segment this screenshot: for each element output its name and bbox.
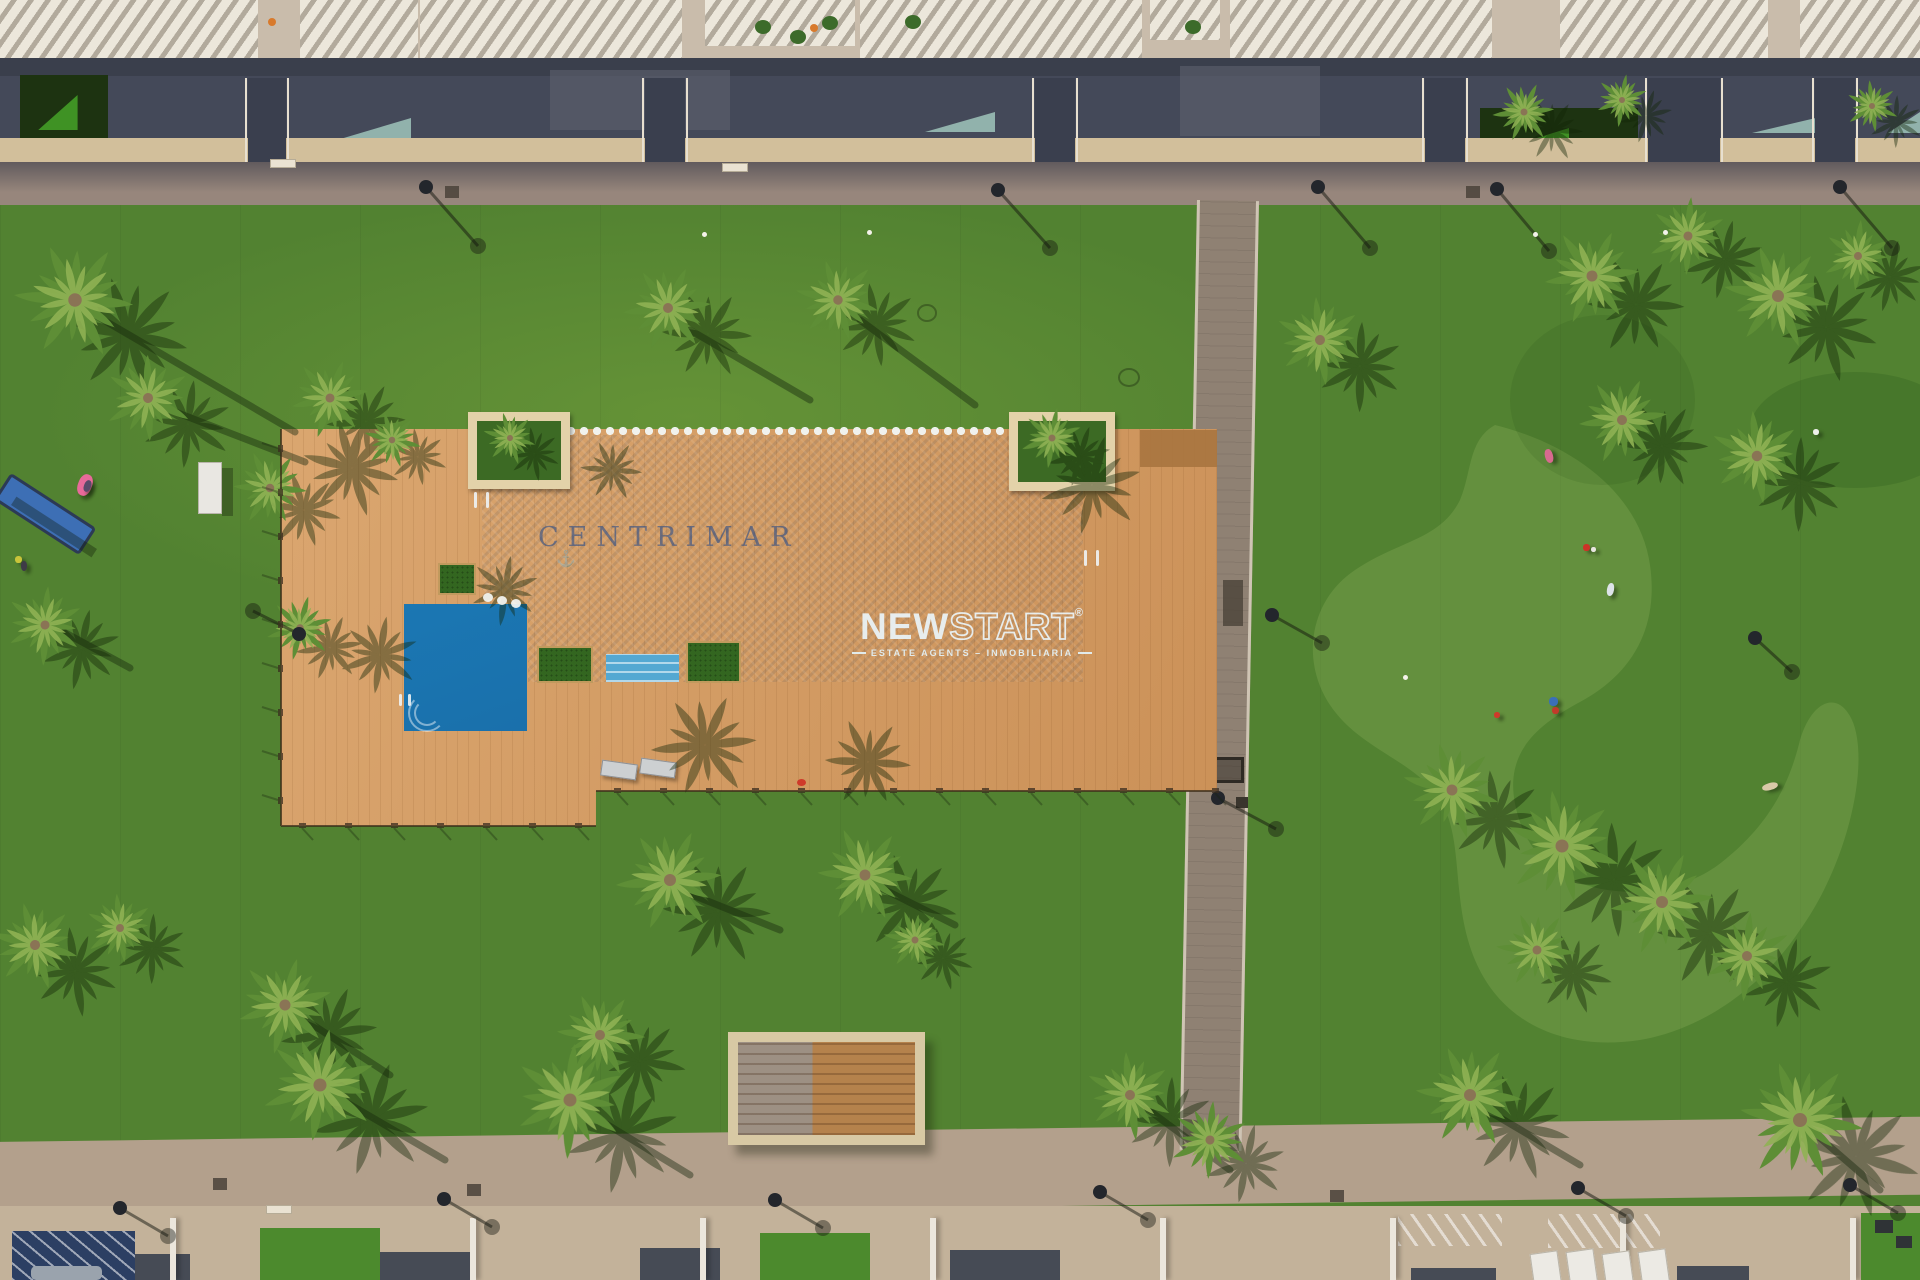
gate-recess	[1425, 78, 1465, 162]
pavement-plaque	[266, 1205, 292, 1214]
unit-dividing-wall	[930, 1218, 936, 1280]
unit-dividing-wall	[700, 1218, 706, 1280]
logo-new-text: NEW	[860, 606, 949, 647]
top-promenade-shadow	[0, 162, 1920, 205]
registered-mark: ®	[1075, 607, 1084, 619]
drain-grate	[445, 186, 459, 198]
garden-chair	[1875, 1220, 1893, 1233]
agency-logo: NEWSTART® ESTATE AGENTS – INMOBILIARIA	[852, 608, 1092, 658]
private-garden-patch	[260, 1228, 380, 1280]
gate-post	[1466, 78, 1468, 162]
drain-grate	[213, 1178, 227, 1190]
gate-recess	[248, 78, 286, 162]
dark-roof-block	[1677, 1266, 1749, 1280]
drain-grate	[1466, 186, 1480, 198]
deck-dark-mat	[1140, 430, 1217, 467]
terrace-plant	[822, 16, 838, 30]
rooftop-slats	[1230, 0, 1492, 64]
pool-ladder	[1096, 550, 1099, 566]
sprinkler-head	[1663, 230, 1668, 235]
white-sun-lounger	[1530, 1250, 1563, 1280]
person	[1583, 544, 1590, 551]
lifebuoy	[797, 779, 806, 786]
stone-planter-left	[468, 412, 570, 489]
gate-post	[1645, 78, 1647, 162]
terrace-plant	[1185, 20, 1201, 34]
tagline-text: ESTATE AGENTS – INMOBILIARIA	[871, 648, 1073, 658]
gate-post	[1812, 78, 1814, 162]
unit-dividing-wall	[470, 1218, 476, 1280]
children-pool-ladder	[408, 694, 411, 706]
gate-post	[245, 78, 247, 162]
person	[21, 561, 27, 571]
white-sun-lounger	[1638, 1248, 1671, 1280]
tagline-dash-right	[1078, 652, 1092, 654]
main-pool-steps	[606, 654, 679, 682]
dark-roof-block	[380, 1252, 470, 1280]
unit-dividing-wall	[1850, 1218, 1856, 1280]
pool-ladder	[486, 492, 489, 508]
pool-name-text: CENTRIMAR	[538, 522, 799, 553]
logo-start-text: START	[949, 606, 1075, 647]
white-sun-lounger	[1566, 1248, 1599, 1280]
terrace-plant	[905, 15, 921, 29]
dark-roof-block	[950, 1250, 1060, 1280]
gate-post	[1032, 78, 1034, 162]
gate-post	[686, 78, 688, 162]
person	[1591, 547, 1596, 552]
gate-post	[642, 78, 644, 162]
unit-dividing-wall	[170, 1218, 176, 1280]
turf-dark-patch	[1510, 315, 1695, 485]
infinity-edge-lip	[552, 425, 1009, 437]
poolside-grass-planter	[686, 641, 741, 683]
person	[1549, 697, 1558, 706]
private-garden-patch	[760, 1233, 870, 1280]
sprinkler-head	[702, 232, 707, 237]
basketball-pole-base	[1236, 797, 1248, 808]
path-drain-grate	[1223, 580, 1243, 626]
gray-tarp	[31, 1266, 102, 1280]
children-pool-steps-inner	[414, 700, 440, 726]
park-bench	[198, 462, 222, 514]
white-sun-lounger	[1602, 1250, 1635, 1280]
terrace-lit-patch	[1180, 66, 1320, 136]
pool-ladder	[1084, 550, 1087, 566]
drain-grate	[467, 1184, 481, 1196]
garden-chair	[1896, 1236, 1912, 1248]
terrace-flower	[268, 18, 276, 26]
gate-recess	[1648, 78, 1720, 162]
drain-grate	[1330, 1190, 1344, 1202]
bench-shadow	[222, 468, 233, 516]
unit-dividing-wall	[1390, 1218, 1396, 1280]
deck-grass-planter	[438, 563, 476, 595]
sprinkler-head	[867, 230, 872, 235]
terrace-flower	[810, 24, 818, 32]
deck-light	[511, 599, 521, 608]
rooftop-slats	[1800, 0, 1920, 62]
terrace-plant	[790, 30, 806, 44]
children-pool-ladder	[399, 694, 402, 706]
stone-planter-right	[1009, 412, 1115, 491]
awning-slats	[1398, 1214, 1502, 1246]
person	[1494, 712, 1500, 718]
terrace-plant	[755, 20, 771, 34]
pavement-plaque	[722, 163, 748, 172]
sprinkler-head	[1533, 232, 1538, 237]
rooftop-slats	[300, 0, 418, 66]
pavement-plaque	[270, 159, 296, 168]
gate-recess	[1815, 78, 1855, 162]
poolside-grass-planter	[537, 646, 593, 683]
gate-recess	[1035, 78, 1075, 162]
garden-pergola-planter	[728, 1032, 925, 1145]
awning-slats	[1548, 1214, 1660, 1248]
anchor-icon: ⚓	[556, 549, 576, 569]
sprinkler-head	[1403, 675, 1408, 680]
dark-roof-block	[640, 1248, 720, 1280]
pool-bottom-watermark: CENTRIMAR	[538, 522, 798, 553]
gate-post	[287, 78, 289, 162]
agency-logo-wordmark: NEWSTART®	[852, 608, 1092, 645]
terrace-lit-patch	[550, 70, 730, 130]
deck-light	[497, 596, 507, 605]
rooftop-slats	[1150, 0, 1220, 40]
unit-dividing-wall	[1160, 1218, 1166, 1280]
agency-tagline: ESTATE AGENTS – INMOBILIARIA	[852, 648, 1092, 658]
gate-recess	[645, 78, 685, 162]
gate-post	[1856, 78, 1858, 162]
aerial-photo-pool-complex: CENTRIMAR ⚓ NEWSTART® ESTATE AGENTS – IN…	[0, 0, 1920, 1280]
building-shadow-dark-edge	[0, 58, 1920, 76]
tagline-dash-left	[852, 652, 866, 654]
manhole-cover	[917, 304, 937, 322]
deck-light	[483, 593, 493, 602]
gate-post	[1721, 78, 1723, 162]
pool-ladder	[474, 492, 477, 508]
dark-roof-block	[1411, 1268, 1496, 1280]
person	[1552, 707, 1559, 714]
person	[1813, 429, 1819, 435]
gate-post	[1422, 78, 1424, 162]
gate-post	[1076, 78, 1078, 162]
